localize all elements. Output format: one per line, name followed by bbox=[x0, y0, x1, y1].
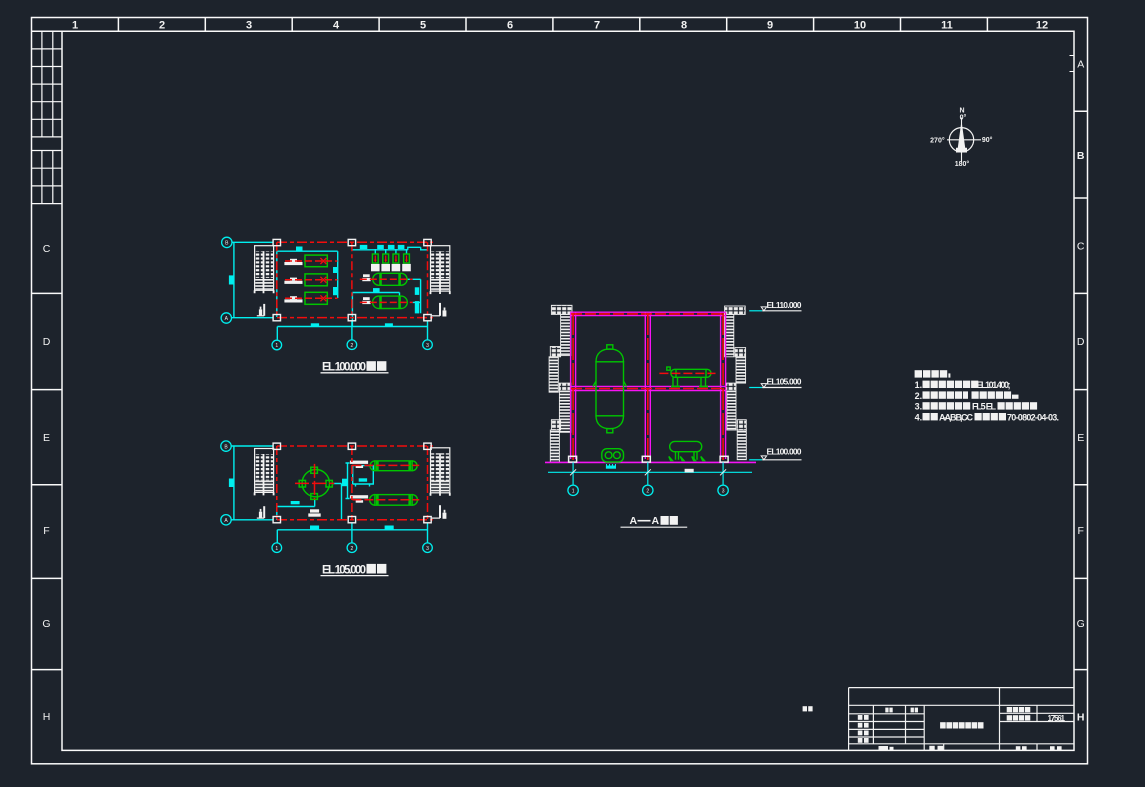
svg-text:9: 9 bbox=[767, 20, 773, 32]
svg-text:F: F bbox=[43, 525, 49, 537]
svg-text:17561: 17561 bbox=[1048, 714, 1066, 723]
svg-text:1: 1 bbox=[275, 546, 278, 552]
svg-text:EL 105.000: EL 105.000 bbox=[322, 564, 366, 576]
svg-text:11: 11 bbox=[941, 20, 953, 32]
svg-text:3: 3 bbox=[426, 546, 429, 552]
svg-text:2: 2 bbox=[351, 343, 354, 349]
svg-text:4: 4 bbox=[333, 20, 340, 32]
svg-text:2: 2 bbox=[351, 546, 354, 552]
svg-text:EL 100.000: EL 100.000 bbox=[322, 362, 366, 374]
svg-text:A: A bbox=[1077, 59, 1084, 71]
svg-text:A: A bbox=[652, 515, 660, 527]
svg-text:4.: 4. bbox=[915, 412, 923, 422]
svg-text:G: G bbox=[42, 618, 50, 630]
svg-text:EL110.000: EL110.000 bbox=[767, 300, 802, 310]
svg-text:E: E bbox=[1077, 432, 1084, 444]
svg-text:H: H bbox=[1077, 712, 1085, 724]
svg-text:2: 2 bbox=[159, 20, 165, 32]
svg-text:A-A, B-B, C-C: A-A, B-B, C-C bbox=[939, 412, 974, 422]
svg-text:90°: 90° bbox=[982, 136, 993, 144]
svg-text:C: C bbox=[43, 243, 51, 255]
svg-text:10: 10 bbox=[854, 20, 866, 32]
svg-text:1: 1 bbox=[72, 20, 78, 32]
svg-text:180°: 180° bbox=[955, 160, 970, 168]
svg-text:C: C bbox=[1077, 241, 1085, 253]
svg-text:1.: 1. bbox=[915, 380, 923, 390]
svg-text:3: 3 bbox=[426, 343, 429, 349]
svg-text:D: D bbox=[1077, 336, 1085, 348]
svg-text:D: D bbox=[43, 336, 51, 348]
svg-text:EL105.000: EL105.000 bbox=[767, 377, 802, 387]
svg-text:3: 3 bbox=[246, 20, 252, 32]
svg-text:H: H bbox=[43, 711, 51, 723]
svg-text:5: 5 bbox=[420, 20, 426, 32]
svg-text:F: F bbox=[1077, 525, 1083, 537]
svg-text:FL5 EL: FL5 EL bbox=[972, 402, 997, 412]
svg-text:270°: 270° bbox=[930, 137, 945, 145]
svg-text:A: A bbox=[630, 515, 638, 527]
svg-text:8: 8 bbox=[681, 20, 687, 32]
svg-text:70-0802-04-03.: 70-0802-04-03. bbox=[1007, 412, 1059, 422]
svg-text:EL101.400;: EL101.400; bbox=[977, 380, 1011, 390]
svg-text:12: 12 bbox=[1036, 20, 1048, 32]
svg-text:2: 2 bbox=[646, 489, 649, 495]
svg-text:B: B bbox=[1077, 150, 1085, 162]
svg-text:6: 6 bbox=[507, 20, 513, 32]
svg-text:1: 1 bbox=[572, 489, 575, 495]
svg-text:N: N bbox=[959, 108, 964, 115]
svg-text:EL100.000: EL100.000 bbox=[767, 447, 802, 457]
svg-text:7: 7 bbox=[594, 20, 600, 32]
svg-text:2.: 2. bbox=[915, 391, 923, 401]
svg-text:0°: 0° bbox=[960, 114, 967, 122]
svg-text:E: E bbox=[43, 432, 50, 444]
svg-text:1: 1 bbox=[275, 343, 278, 349]
svg-text:3: 3 bbox=[722, 489, 725, 495]
svg-text:3.: 3. bbox=[915, 402, 923, 412]
svg-text:G: G bbox=[1077, 618, 1085, 630]
